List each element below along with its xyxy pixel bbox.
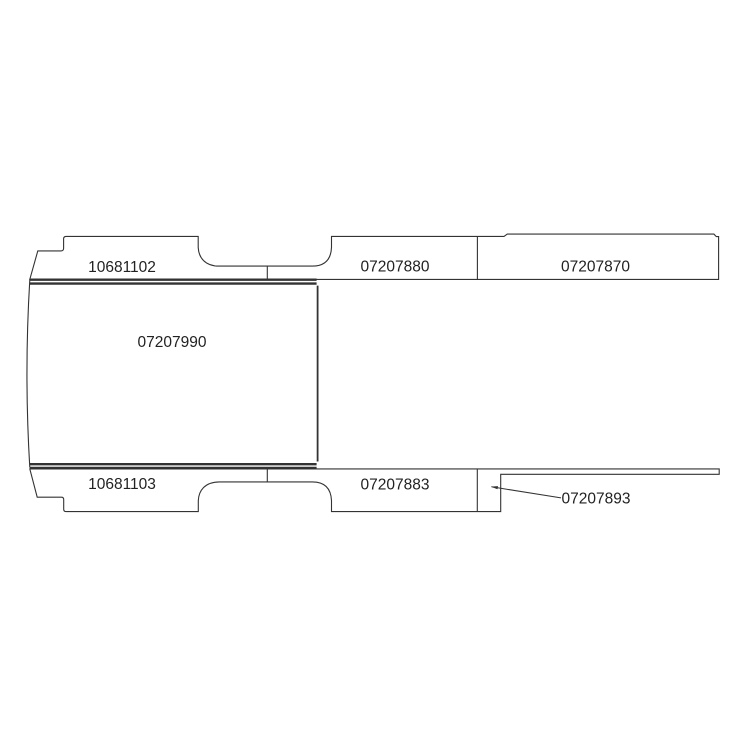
svg-text:10681103: 10681103 (88, 476, 156, 493)
svg-text:10681102: 10681102 (88, 259, 156, 276)
svg-text:07207883: 07207883 (361, 477, 430, 494)
svg-text:07207870: 07207870 (561, 259, 630, 276)
svg-text:07207990: 07207990 (138, 334, 207, 351)
svg-text:07207880: 07207880 (361, 259, 430, 276)
svg-text:07207893: 07207893 (562, 491, 631, 508)
